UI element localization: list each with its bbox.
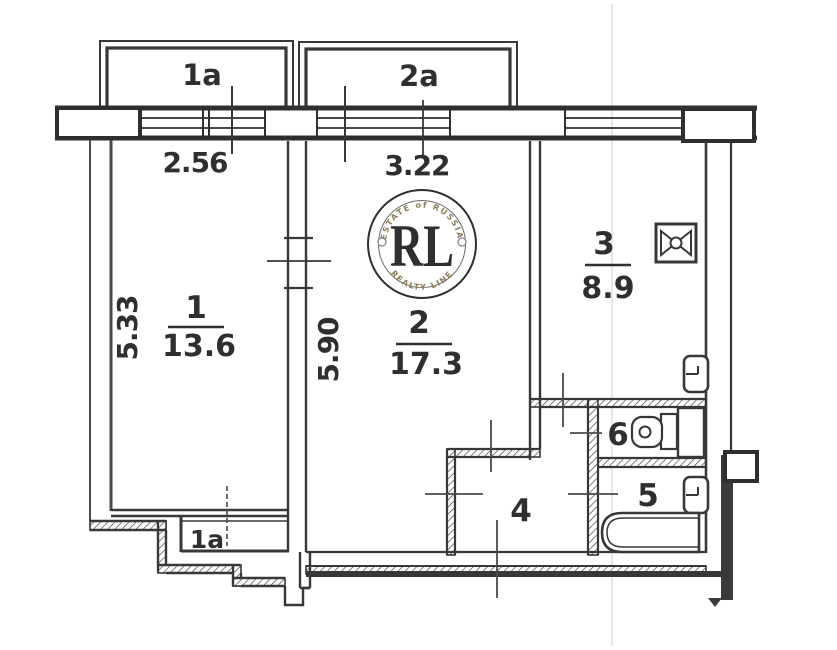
room-4-number: 4 [510, 493, 532, 529]
balcony-1a-label: 1a [182, 58, 222, 92]
room-1-number: 1 [185, 290, 207, 326]
room-6-number: 6 [607, 417, 629, 453]
floor-plan-page: 1 13.6 2 17.3 3 8.9 4 5 6 1a 2a 1a 2.56 … [0, 0, 837, 650]
towel-rail-icon-lower [684, 477, 708, 513]
dim-room2-width: 3.22 [384, 149, 449, 182]
bathtub-icon [602, 513, 699, 552]
room-2-number: 2 [408, 305, 430, 341]
dim-room1-width: 2.56 [162, 146, 227, 179]
toilet-icon [632, 414, 677, 449]
dim-room1-depth: 5.33 [111, 295, 144, 360]
towel-rail-icon-upper [684, 356, 708, 392]
dim-room2-depth: 5.90 [312, 317, 345, 383]
watermark-monogram: RL [390, 213, 454, 279]
shaft-column [678, 408, 704, 457]
room-3 [540, 141, 706, 399]
room-3-number: 3 [593, 226, 615, 262]
room-3-area: 8.9 [581, 271, 634, 306]
floor-plan-svg: 1 13.6 2 17.3 3 8.9 4 5 6 1a 2a 1a 2.56 … [0, 0, 837, 650]
balcony-2a-label: 2a [399, 59, 439, 93]
watermark-badge: RL ESTATE of RUSSIA REALTY LINE [365, 187, 479, 301]
closet-1a-label: 1a [190, 525, 224, 554]
room-5-number: 5 [637, 478, 659, 514]
room-2-area: 17.3 [389, 347, 463, 382]
room-1-area: 13.6 [162, 329, 236, 364]
